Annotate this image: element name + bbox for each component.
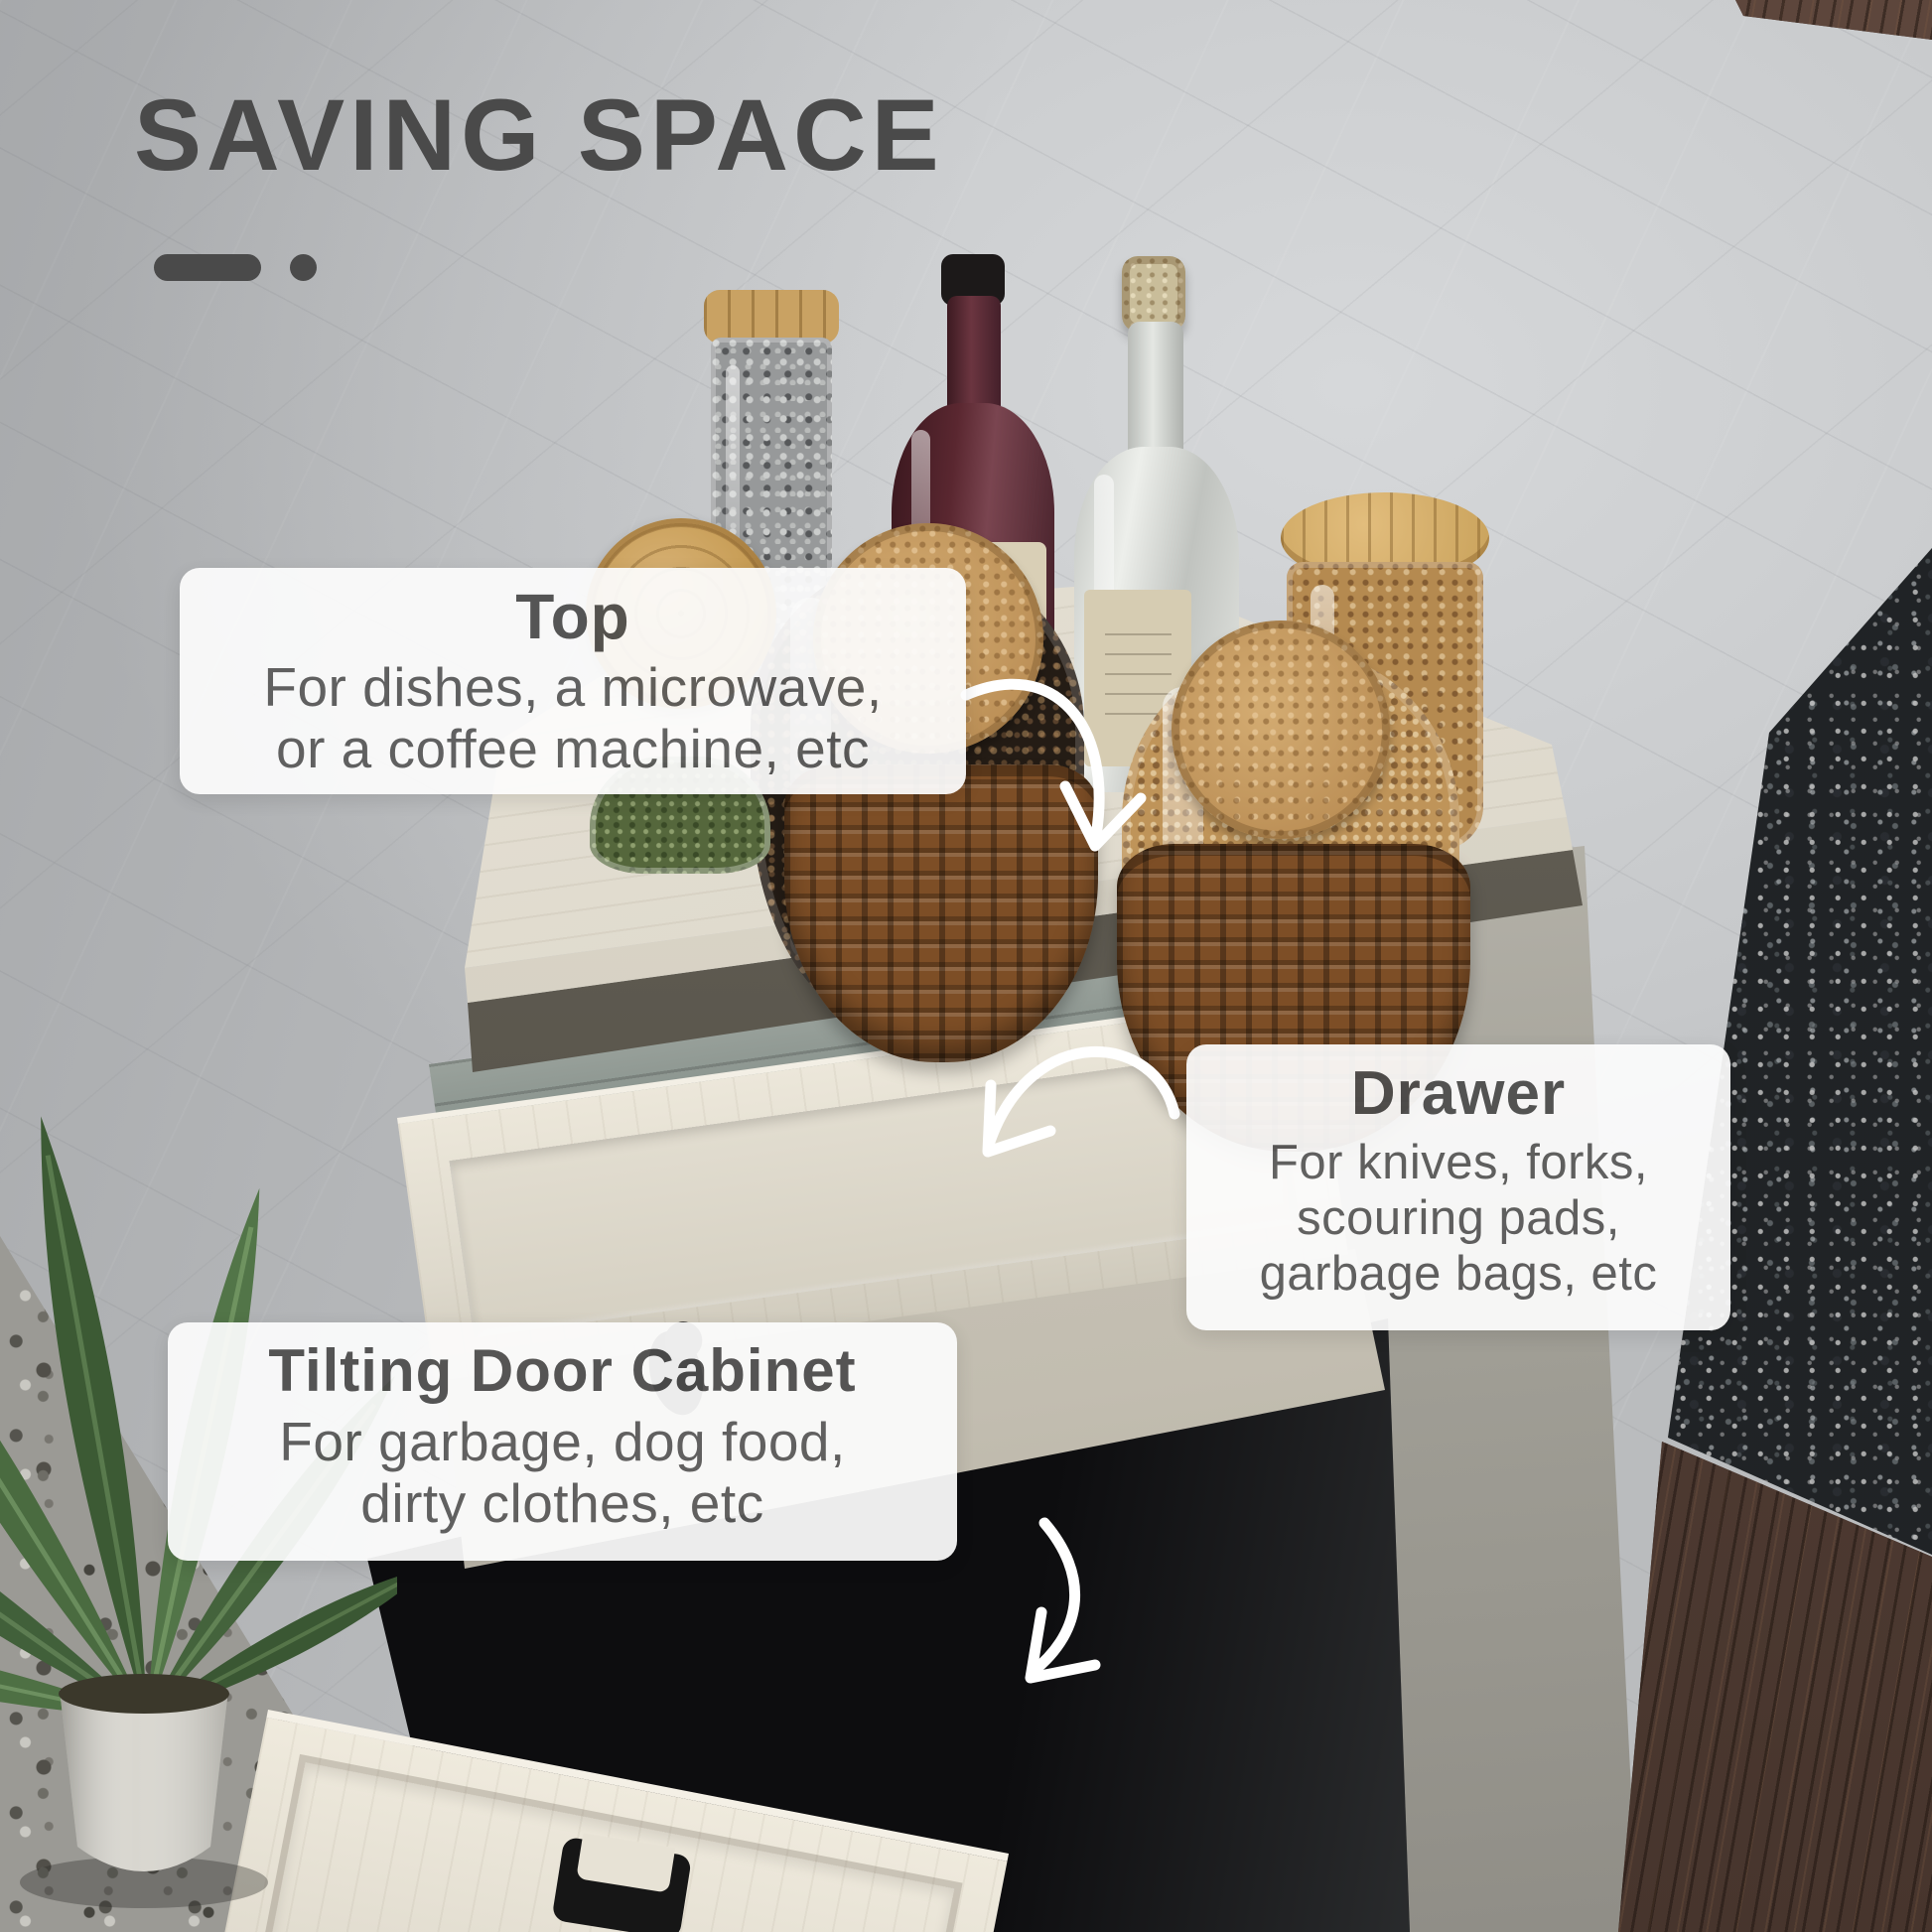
title-underline — [154, 254, 352, 284]
callout-line: For garbage, dog food, — [168, 1412, 957, 1473]
callout-line: dirty clothes, etc — [168, 1473, 957, 1535]
callout-drawer: Drawer For knives, forks, scouring pads,… — [1186, 1044, 1730, 1330]
callout-line: For knives, forks, — [1186, 1136, 1730, 1191]
callout-body: For dishes, a microwave, or a coffee mac… — [180, 657, 966, 779]
callout-title: Drawer — [1186, 1060, 1730, 1128]
bottle-neck — [1128, 322, 1183, 461]
callout-line: scouring pads, — [1186, 1191, 1730, 1247]
page-title: SAVING SPACE — [134, 77, 944, 194]
wicker-basket — [784, 764, 1098, 1062]
cork-lid — [1172, 621, 1390, 839]
page-title-block: SAVING SPACE — [134, 77, 944, 194]
callout-title: Tilting Door Cabinet — [168, 1338, 957, 1404]
callout-line: For dishes, a microwave, — [180, 657, 966, 719]
callout-line: garbage bags, etc — [1186, 1247, 1730, 1303]
title-underline-dash — [154, 254, 261, 281]
callout-tilting-door-cabinet: Tilting Door Cabinet For garbage, dog fo… — [168, 1322, 957, 1561]
callout-top: Top For dishes, a microwave, or a coffee… — [180, 568, 966, 794]
callout-body: For knives, forks, scouring pads, garbag… — [1186, 1136, 1730, 1303]
door-handle — [551, 1837, 692, 1932]
callout-body: For garbage, dog food, dirty clothes, et… — [168, 1412, 957, 1534]
bottle-cork — [1122, 256, 1185, 332]
saving-space-infographic: SAVING SPACE Top For dishes, a microwave… — [0, 0, 1932, 1932]
callout-title: Top — [180, 582, 966, 651]
callout-line: or a coffee machine, etc — [180, 719, 966, 780]
plant-pot — [59, 1674, 229, 1871]
wooden-lid — [704, 290, 839, 344]
title-underline-dot — [290, 254, 317, 281]
